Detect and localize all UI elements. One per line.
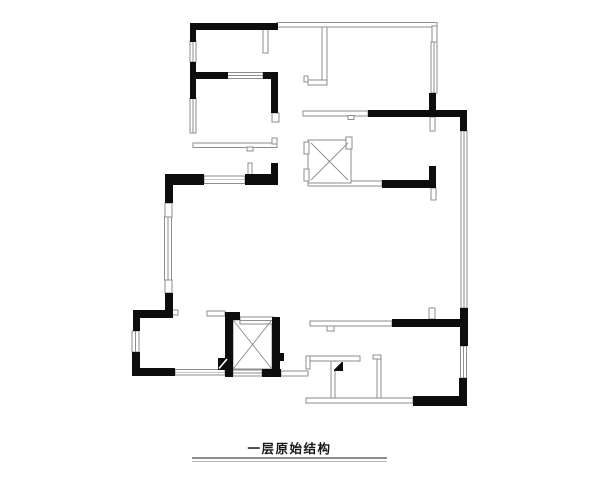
outline-corridor-lower (310, 321, 392, 326)
wall-shaft2-south (262, 369, 281, 377)
wall-corridor-right (245, 174, 278, 185)
outline-partition-foot-tick (304, 76, 308, 82)
wall-room4-south (133, 368, 175, 376)
outline-terrace-v2 (377, 359, 381, 402)
stub-above-lower-wall (429, 308, 435, 319)
wall-lower-mid-black (392, 319, 462, 327)
stub-entry-below-wall (430, 117, 435, 131)
wall-right-top-corner (460, 110, 467, 131)
outline-corridor-upper-notch (348, 116, 354, 120)
outline-shaft1-tab (346, 137, 352, 149)
wall-upper-mid-black (368, 110, 467, 117)
stub-room1-east-cap (272, 113, 279, 122)
wall-right-a (460, 308, 468, 346)
windows-group (132, 41, 467, 378)
wall-top-room1 (190, 23, 278, 30)
floor-plan-canvas: 一层原始结构 (0, 0, 600, 480)
outline-terrace-partition (306, 356, 360, 361)
outline-partition-vert (322, 27, 327, 82)
wall-room1-south-left (190, 72, 228, 79)
stub-hall-below-wall (431, 188, 436, 200)
wall-hall-black (382, 180, 436, 188)
outline-partition-foot (308, 80, 327, 85)
outline-room1-stub (263, 29, 268, 53)
stub-left-mid-cap-bottom (165, 280, 172, 293)
outline-room2-partition (193, 143, 277, 148)
outline-corridor-upper (303, 111, 368, 116)
walls-group (132, 23, 468, 406)
wall-shaft2-east-tab (280, 353, 284, 361)
wall-left-upper-a (190, 29, 196, 42)
outline-shaft1-jamb-top (304, 142, 309, 154)
wall-bottom-right (413, 396, 463, 406)
outline-top-line (277, 23, 437, 28)
floor-plan-svg (0, 0, 600, 480)
outline-corridor-lower-notch (327, 326, 334, 331)
stub-corridor-tick (248, 163, 252, 175)
wall-corridor-stub-up (271, 163, 278, 175)
wall-left-upper-b (190, 62, 196, 99)
wall-shaft2-east (272, 317, 280, 377)
wall-room4-west-a (133, 310, 140, 331)
outline-terrace-v2-hook (373, 355, 381, 359)
wall-shaft2-north-corner (225, 312, 240, 320)
outline-top-right-corner (432, 26, 437, 43)
outline-room2-door-notch (247, 147, 253, 151)
outline-room2-hook (272, 138, 277, 144)
outline-terrace-partition-cap (306, 356, 310, 369)
drawing-title: 一层原始结构 (192, 438, 387, 454)
outline-terrace-bridge (281, 371, 308, 376)
title-underline-top (192, 457, 387, 459)
outline-terrace-bottom (306, 398, 413, 403)
stub-shaft2-west-link (207, 311, 225, 316)
title-underline-bottom (192, 461, 387, 462)
wall-room1-east (271, 72, 278, 113)
wall-entry-top (429, 93, 436, 112)
outline-shaft1-jamb-bottom (304, 169, 309, 181)
stub-left-mid-cap-top (165, 203, 172, 217)
wall-left-mid-a (165, 182, 173, 203)
